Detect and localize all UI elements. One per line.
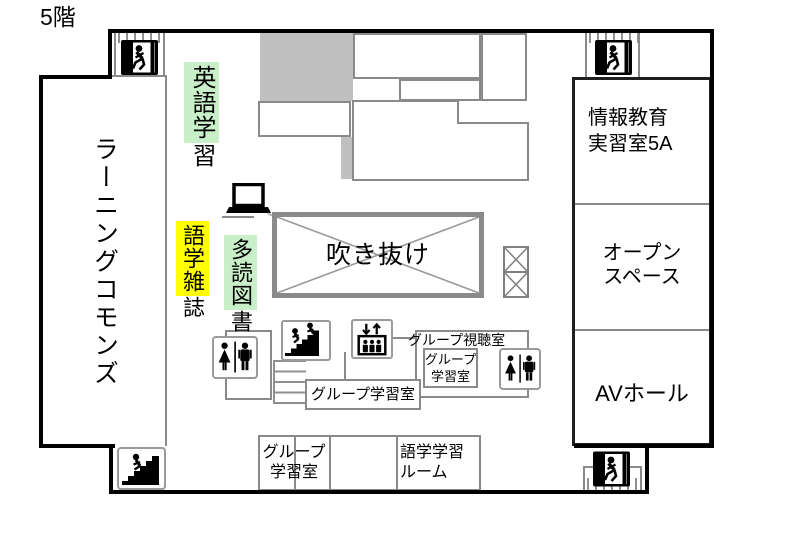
- bottom-row-divider-3: [396, 436, 398, 490]
- exit-tl-side-left: [114, 33, 116, 76]
- stairs-up-icon-box: [117, 447, 166, 490]
- english-learning-rest: 習: [188, 143, 215, 168]
- language-magazines-rest: 誌: [180, 296, 205, 319]
- open-space-line1: オープン: [574, 241, 710, 265]
- wall-bottomright-step-v: [645, 444, 649, 494]
- language-magazines-label: 語学雑誌: [181, 221, 203, 319]
- exit-tr-side-right: [638, 33, 640, 77]
- stairs-people-icon-box: [281, 320, 331, 361]
- language-room-line2: ルーム: [400, 463, 464, 483]
- atrium-label: 吹き抜け: [326, 240, 430, 271]
- wall-lc-bottom: [39, 444, 115, 448]
- english-learning-highlight: 英語学: [184, 62, 219, 143]
- room-top-a: [353, 33, 481, 79]
- exit-tr-side-left: [585, 33, 587, 77]
- restroom-icon-box-left: [212, 336, 258, 379]
- laptop-table-line: [222, 216, 254, 218]
- service-area-block: [260, 33, 353, 101]
- group-study-inner-line1: グループ: [423, 351, 478, 368]
- exit-tl-side-right: [163, 33, 165, 76]
- learning-commons-label: ラーニングコモンズ: [92, 136, 117, 388]
- tadoku-books-label: 多読図書: [229, 235, 251, 333]
- stairs-up-icon: [119, 449, 164, 488]
- room-top-c: [399, 79, 481, 101]
- stairs-people-icon: [283, 322, 329, 359]
- info-room-label: 情報教育 実習室5A: [588, 105, 672, 157]
- language-room-label: 語学学習 ルーム: [400, 443, 464, 483]
- floor-plan: 吹き抜け: [0, 0, 800, 545]
- av-hall-label: AVホール: [574, 381, 710, 408]
- floor-label: 5階: [40, 3, 76, 31]
- group-study-bottom-label: グループ 学習室: [246, 443, 342, 483]
- tadoku-books-highlight: 多読図: [224, 235, 257, 310]
- emergency-exit-icon: [593, 451, 630, 487]
- language-magazines-highlight: 語学雑: [176, 221, 209, 296]
- wall-bottomleft-step-v: [109, 444, 113, 494]
- english-learning-label: 英語学習: [189, 62, 213, 168]
- restroom-icon-box-right: [499, 348, 541, 390]
- restroom-icon: [214, 338, 256, 377]
- right-column-divider-2: [575, 329, 709, 331]
- exit-br-side-right: [640, 466, 642, 490]
- group-study-mid-label: グループ学習室: [305, 386, 421, 404]
- wall-bottom: [109, 490, 649, 494]
- emergency-exit-icon: [121, 40, 158, 75]
- elevator-icon-box: [351, 319, 393, 359]
- right-column-divider-1: [575, 203, 709, 205]
- exit-br-side-left: [583, 466, 585, 490]
- info-room-line1: 情報教育: [588, 105, 672, 131]
- group-study-bottom-line1: グループ: [246, 443, 342, 463]
- open-space-label: オープン スペース: [574, 241, 710, 289]
- emergency-exit-icon: [595, 40, 632, 75]
- wall-av-bottom: [574, 444, 714, 448]
- corridor-vertical-line: [344, 352, 346, 379]
- language-room-line1: 語学学習: [400, 443, 464, 463]
- group-study-bottom-line2: 学習室: [246, 463, 342, 483]
- group-study-inner-label: グループ 学習室: [423, 351, 478, 385]
- open-space-line2: スペース: [574, 265, 710, 289]
- room-top-b: [481, 33, 527, 101]
- learning-commons-right-line: [165, 76, 167, 446]
- center-stair-treads: [273, 360, 306, 404]
- wall-topleft-notch-v: [108, 29, 112, 79]
- wall-right: [710, 29, 714, 448]
- room-top-d-step-shape: [351, 99, 531, 183]
- learning-commons-top-line: [108, 75, 167, 77]
- group-study-inner-line2: 学習室: [423, 368, 478, 385]
- elevator-icon: [353, 320, 391, 358]
- room-top-e: [258, 101, 351, 137]
- restroom-icon: [501, 351, 539, 387]
- atrium-area: 吹き抜け: [272, 212, 484, 298]
- tadoku-books-rest: 書: [228, 310, 253, 333]
- learning-commons-room: ラーニングコモンズ: [43, 79, 165, 444]
- info-room-line2: 実習室5A: [588, 131, 672, 157]
- group-av-room-label: グループ視聴室: [408, 332, 505, 349]
- elevator-shaft-symbol: [503, 246, 529, 299]
- laptop-icon: [226, 183, 272, 217]
